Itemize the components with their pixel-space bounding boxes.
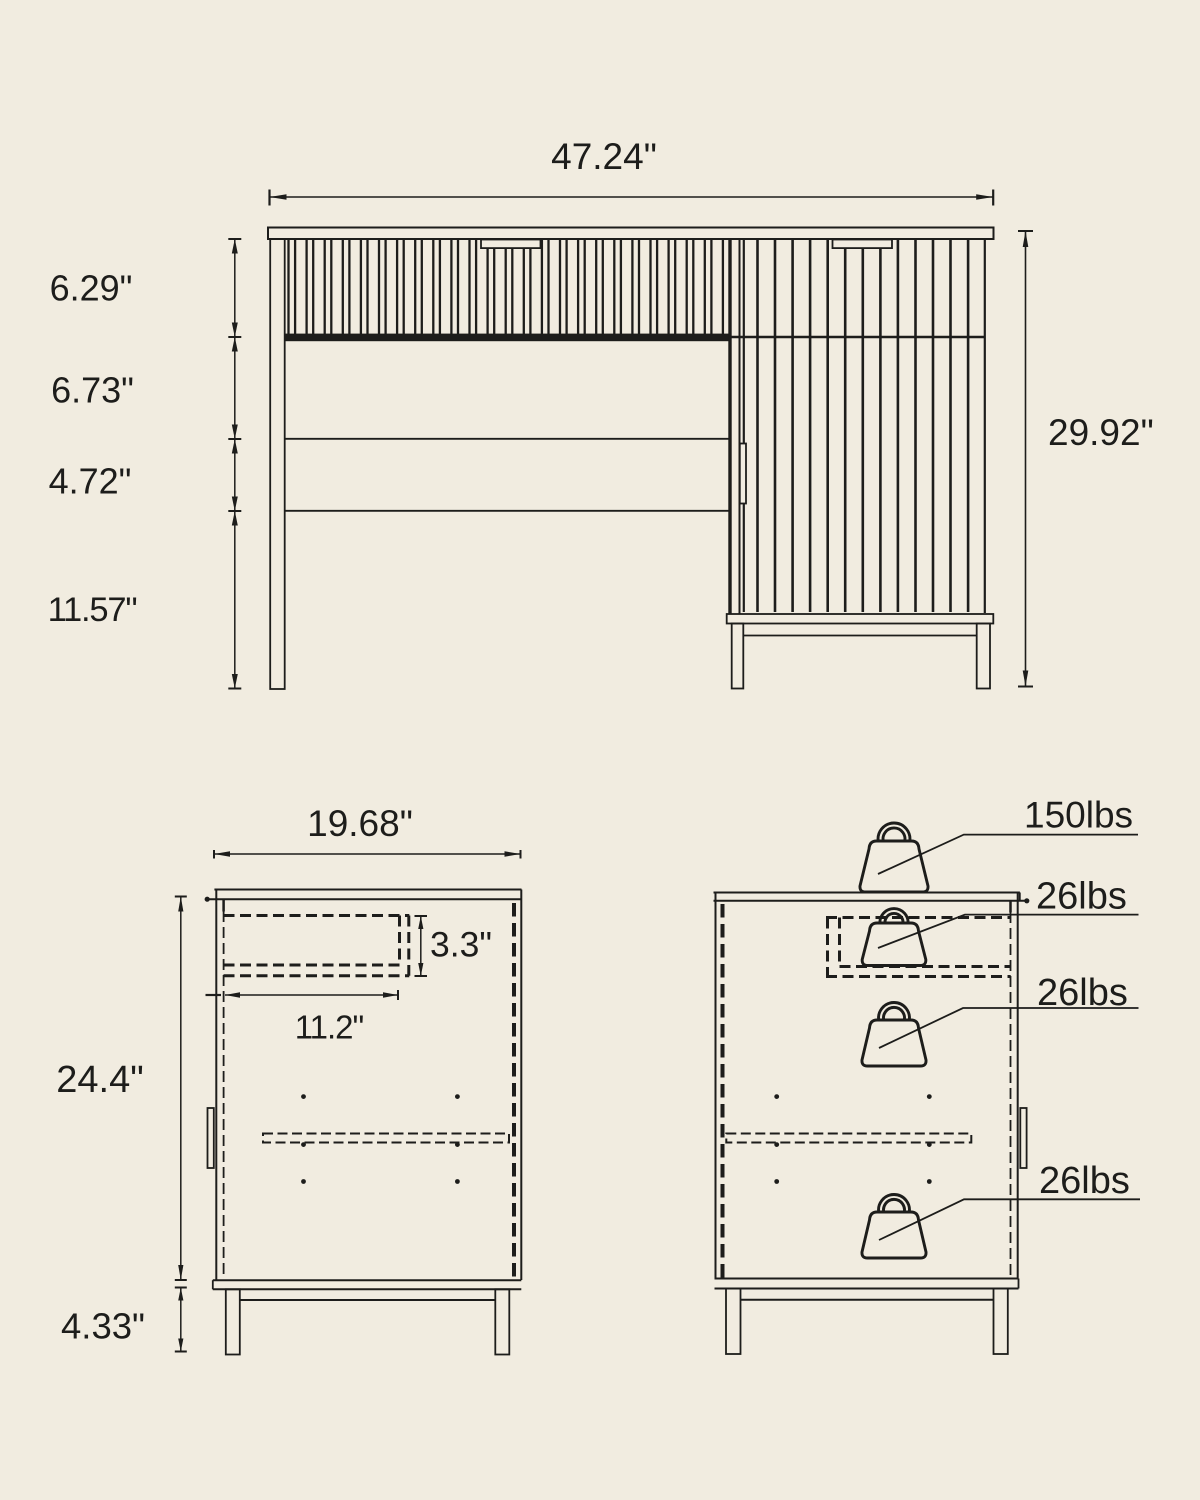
svg-text:4.33": 4.33": [61, 1306, 145, 1347]
svg-text:6.73": 6.73": [51, 370, 134, 411]
svg-text:26lbs: 26lbs: [1037, 972, 1128, 1014]
svg-text:26lbs: 26lbs: [1036, 876, 1127, 918]
svg-text:26lbs: 26lbs: [1039, 1160, 1130, 1202]
svg-text:24.4": 24.4": [56, 1059, 143, 1101]
svg-text:47.24": 47.24": [551, 136, 657, 177]
svg-text:11.57": 11.57": [48, 591, 137, 629]
svg-text:150lbs: 150lbs: [1024, 795, 1133, 836]
svg-text:4.72": 4.72": [49, 461, 132, 502]
svg-text:6.29": 6.29": [50, 268, 133, 309]
svg-text:11.2": 11.2": [295, 1009, 364, 1046]
svg-text:19.68": 19.68": [307, 803, 413, 844]
svg-text:3.3": 3.3": [430, 925, 492, 965]
svg-text:29.92": 29.92": [1048, 412, 1154, 453]
